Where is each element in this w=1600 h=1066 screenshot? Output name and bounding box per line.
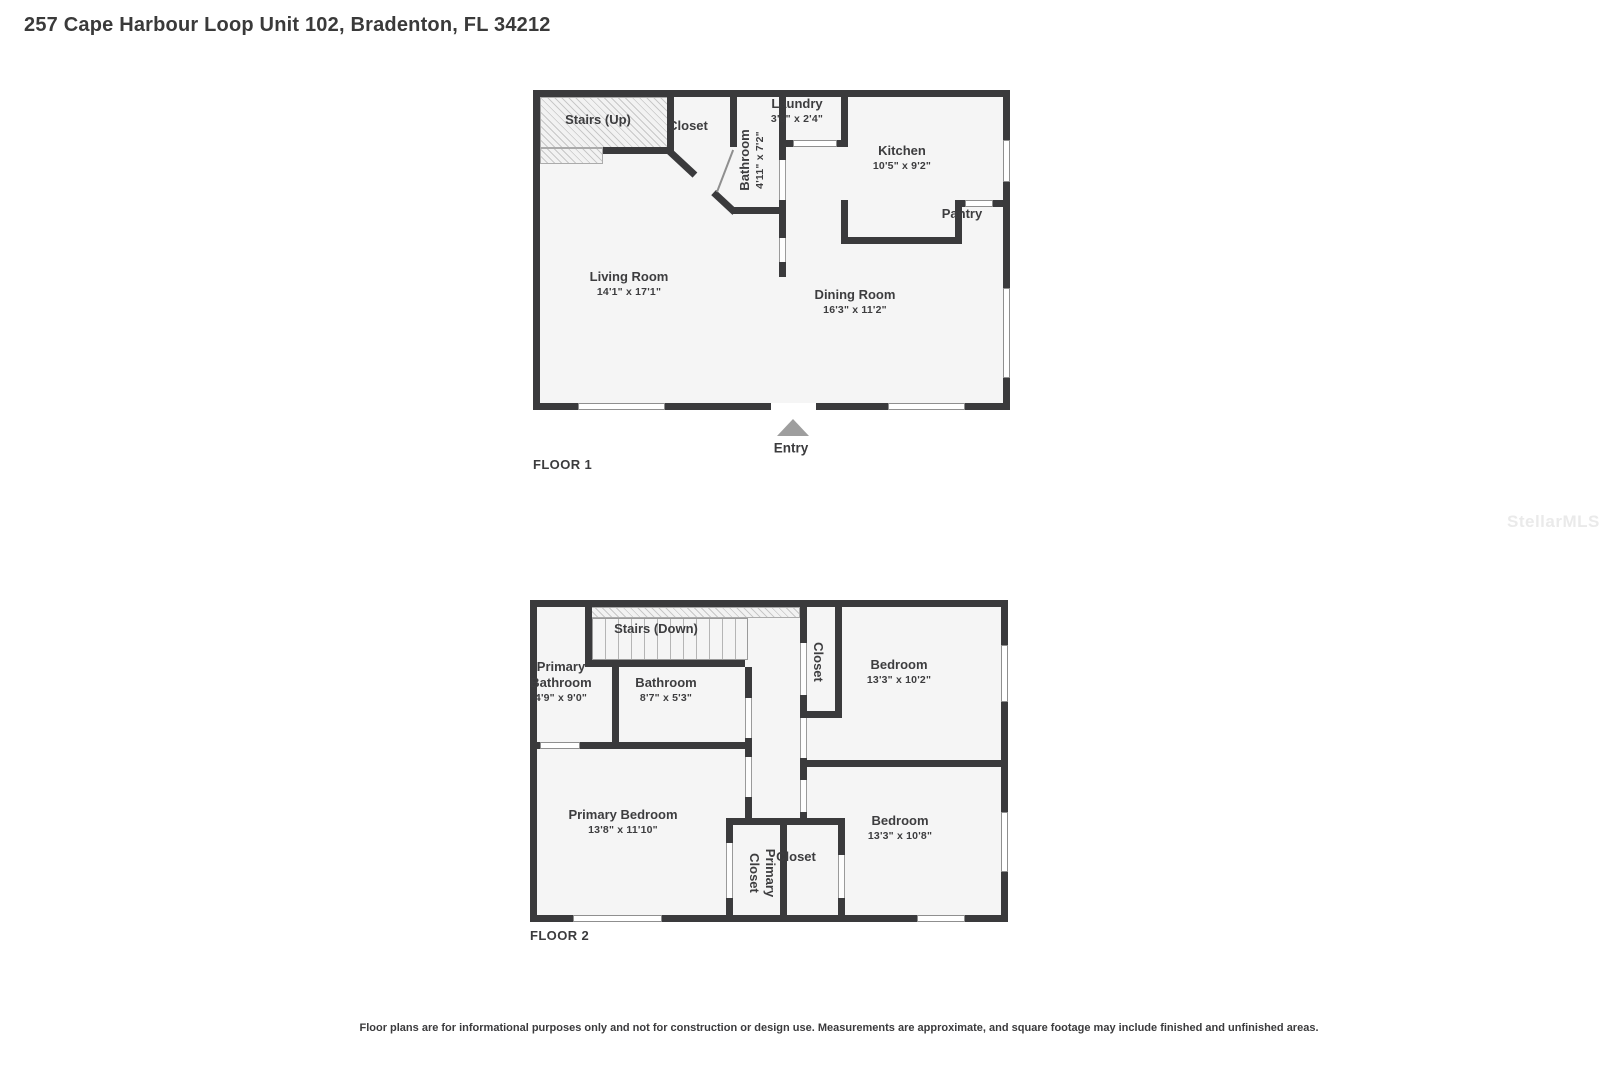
page-title: 257 Cape Harbour Loop Unit 102, Bradento… xyxy=(24,14,551,37)
room-name: Primary Bathroom xyxy=(524,659,598,691)
wall-segment xyxy=(780,818,845,825)
room-label-primary-closet: Primary Closet xyxy=(746,844,778,902)
wall-segment xyxy=(838,898,845,915)
wall-segment xyxy=(779,200,786,214)
wall-segment xyxy=(530,915,573,922)
room-dims: 13'8" x 11'10" xyxy=(568,823,677,837)
closet-door-leaf xyxy=(716,150,734,193)
front-window xyxy=(888,403,965,410)
room-label-bedroom-upper: Bedroom 13'3" x 10'2" xyxy=(867,657,931,687)
room-dims: 4'9" x 9'0" xyxy=(524,691,598,705)
room-label-bedroom-lower: Bedroom 13'3" x 10'8" xyxy=(868,813,932,843)
bathroom-door xyxy=(779,160,786,200)
wall-segment xyxy=(745,667,752,698)
wall-segment xyxy=(745,749,752,757)
room-dims: 3'8" x 2'4" xyxy=(771,112,823,126)
wall-segment xyxy=(662,915,917,922)
wall-segment xyxy=(530,600,1008,607)
room-label-pantry: Pantry xyxy=(942,206,982,222)
room-label-stairs-down: Stairs (Down) xyxy=(614,621,698,637)
primary-bedroom-door xyxy=(745,757,752,797)
bedroom-upper-door xyxy=(800,718,807,758)
room-label-closet-lower: Closet xyxy=(776,849,816,865)
wall-segment xyxy=(726,898,733,915)
entry-arrow-icon xyxy=(777,419,809,436)
floorplan-page: 257 Cape Harbour Loop Unit 102, Bradento… xyxy=(0,0,1600,1066)
wall-segment xyxy=(835,607,842,718)
wall-segment xyxy=(585,660,745,667)
room-name: Closet xyxy=(810,642,826,682)
closet-upper-door xyxy=(800,643,807,695)
disclaimer-text: Floor plans are for informational purpos… xyxy=(0,1022,1600,1034)
wall-segment xyxy=(965,915,1008,922)
room-label-closet-upper: Closet xyxy=(810,642,826,682)
wall-segment xyxy=(603,147,672,154)
room-name: Stairs (Up) xyxy=(565,112,631,128)
entry-label: Entry xyxy=(774,441,809,456)
room-name: Closet xyxy=(776,849,816,865)
wall-segment xyxy=(1003,182,1010,288)
wall-segment xyxy=(1001,600,1008,645)
room-dims: 4'11" x 7'2" xyxy=(753,129,767,190)
wall-segment xyxy=(726,818,787,825)
room-label-laundry: Laundry 3'8" x 2'4" xyxy=(771,96,823,126)
room-label-primary-bathroom: Primary Bathroom 4'9" x 9'0" xyxy=(524,659,598,705)
room-dims: 14'1" x 17'1" xyxy=(590,285,669,299)
wall-segment xyxy=(993,200,1010,207)
hall-door xyxy=(779,238,786,262)
room-name: Bathroom xyxy=(737,129,753,190)
wall-segment xyxy=(780,825,787,915)
room-name: Kitchen xyxy=(873,143,931,159)
room-dims: 13'3" x 10'2" xyxy=(867,673,931,687)
laundry-door xyxy=(793,140,837,147)
room-label-stairs-up: Stairs (Up) xyxy=(565,112,631,128)
room-name: Living Room xyxy=(590,269,669,285)
wall-segment xyxy=(1003,90,1010,140)
wall-segment xyxy=(800,767,807,780)
wall-segment xyxy=(816,403,888,410)
primary-bathroom-door xyxy=(540,742,580,749)
room-name: Closet xyxy=(668,118,708,134)
room-name: Pantry xyxy=(942,206,982,222)
wall-segment xyxy=(841,237,962,244)
wall-segment xyxy=(530,742,540,749)
watermark: StellarMLS xyxy=(1507,512,1600,532)
room-label-dining-room: Dining Room 16'3" x 11'2" xyxy=(815,287,896,317)
wall-segment xyxy=(733,207,785,214)
wall-segment xyxy=(533,403,578,410)
wall-segment xyxy=(730,97,737,147)
room-label-living-room: Living Room 14'1" x 17'1" xyxy=(590,269,669,299)
room-name: Primary Closet xyxy=(746,844,778,902)
stairs-up-hatch-step xyxy=(540,148,603,164)
wall-segment xyxy=(800,607,807,643)
room-dims: 16'3" x 11'2" xyxy=(815,303,896,317)
room-name: Bedroom xyxy=(867,657,931,673)
wall-segment xyxy=(533,90,540,410)
wall-segment xyxy=(800,711,842,718)
wall-segment xyxy=(800,758,807,767)
kitchen-window xyxy=(1003,140,1010,182)
closet-lower-door xyxy=(838,855,845,898)
floor2-label: FLOOR 2 xyxy=(530,928,589,943)
wall-segment xyxy=(612,667,619,749)
living-window xyxy=(578,403,665,410)
wall-segment xyxy=(838,825,845,855)
wall-segment xyxy=(779,262,786,277)
room-name: Stairs (Down) xyxy=(614,621,698,637)
entry-opening xyxy=(771,403,816,410)
room-dims: 13'3" x 10'8" xyxy=(868,829,932,843)
wall-segment xyxy=(841,97,848,147)
primary-closet-door xyxy=(726,843,733,898)
wall-segment xyxy=(841,200,848,240)
floor1-plan: Stairs (Up) Closet Bathroom 4'11" x 7'2"… xyxy=(533,90,1010,410)
bedroom-lower-window xyxy=(1001,812,1008,872)
room-name: Laundry xyxy=(771,96,823,112)
floor2-plan: Stairs (Down) Primary Bathroom 4'9" x 9'… xyxy=(530,600,1008,922)
wall-segment xyxy=(786,140,793,147)
room-name: Bathroom xyxy=(635,675,696,691)
wall-segment xyxy=(745,738,752,749)
primary-bedroom-window xyxy=(573,915,662,922)
wall-segment xyxy=(585,607,592,667)
bedroom-lower-door xyxy=(800,780,807,812)
floor1-label: FLOOR 1 xyxy=(533,457,592,472)
room-name: Primary Bedroom xyxy=(568,807,677,823)
wall-segment xyxy=(965,403,1010,410)
stairs-down-hatch xyxy=(590,607,800,618)
room-dims: 10'5" x 9'2" xyxy=(873,159,931,173)
room-label-bathroom2: Bathroom 8'7" x 5'3" xyxy=(635,675,696,705)
wall-segment xyxy=(807,760,1001,767)
bathroom2-door xyxy=(745,698,752,738)
room-label-primary-bedroom: Primary Bedroom 13'8" x 11'10" xyxy=(568,807,677,837)
room-name: Dining Room xyxy=(815,287,896,303)
wall-segment xyxy=(530,600,537,922)
wall-segment xyxy=(1001,702,1008,812)
room-dims: 8'7" x 5'3" xyxy=(635,691,696,705)
bedroom-lower-window2 xyxy=(917,915,965,922)
wall-segment xyxy=(666,148,697,178)
room-label-bathroom: Bathroom 4'11" x 7'2" xyxy=(737,129,767,190)
wall-segment xyxy=(665,403,771,410)
room-name: Bedroom xyxy=(868,813,932,829)
wall-segment xyxy=(726,825,733,843)
dining-window xyxy=(1003,288,1010,378)
room-label-kitchen: Kitchen 10'5" x 9'2" xyxy=(873,143,931,173)
bedroom-upper-window xyxy=(1001,645,1008,702)
wall-segment xyxy=(580,742,752,749)
wall-segment xyxy=(779,214,786,238)
room-label-closet: Closet xyxy=(668,118,708,134)
wall-segment xyxy=(800,812,807,818)
